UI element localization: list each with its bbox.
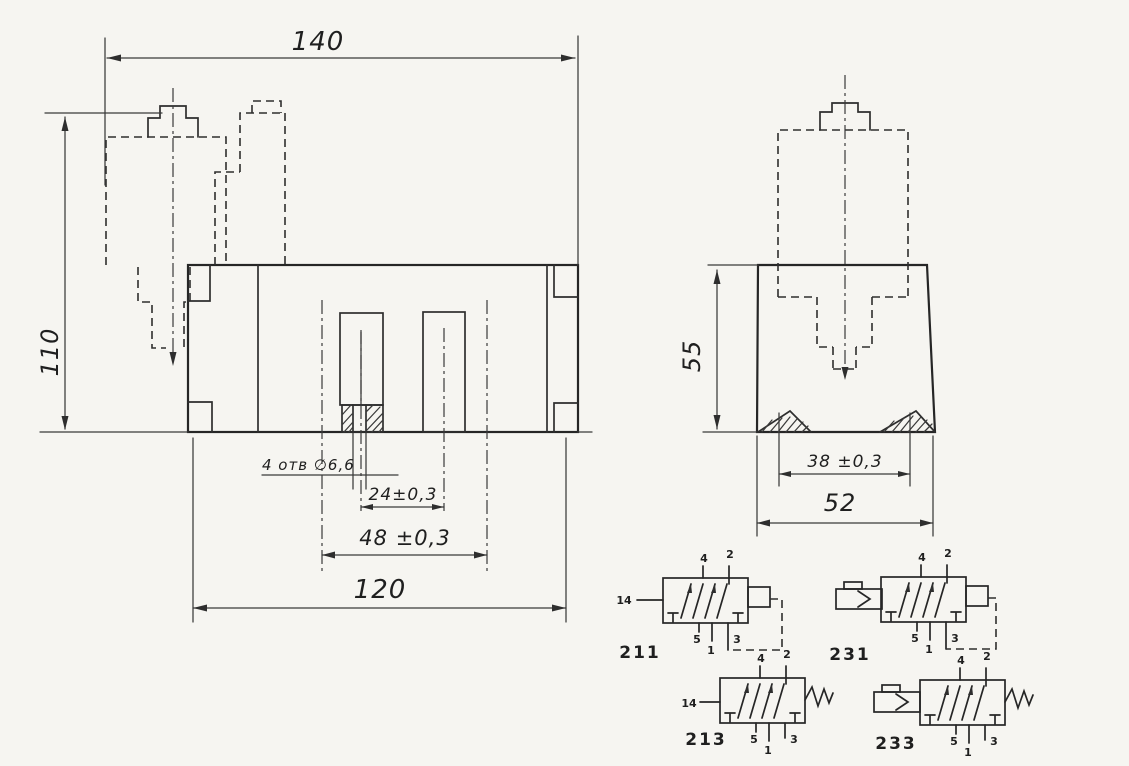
port-14-label: 14 (681, 697, 697, 710)
port-2-label: 2 (726, 548, 734, 561)
port-1-label: 1 (764, 744, 772, 757)
schematic-233: 4 2 5 1 3 233 (874, 650, 1033, 759)
port-1-label: 1 (707, 644, 715, 657)
dimension-24: 24±0,3 (361, 328, 444, 511)
spring-icon (805, 687, 833, 706)
scanned-drawing-page: 140 110 4 отв ∅6,6 24±0,3 (0, 0, 1129, 766)
dim-55-label: 55 (678, 340, 706, 373)
port-4-label: 4 (918, 551, 926, 564)
port-1-label: 1 (925, 643, 933, 656)
port-3-label: 3 (990, 735, 998, 748)
port-2-label: 2 (983, 650, 991, 663)
port-2-label: 2 (783, 648, 791, 661)
port-5-label: 5 (750, 733, 758, 746)
port-1-label: 1 (964, 746, 972, 759)
front-view-body (40, 265, 592, 432)
port-3-label: 3 (733, 633, 741, 646)
front-view-hidden-stem (138, 267, 190, 348)
side-view-hidden-pilot (778, 75, 908, 380)
dim-24-label: 24±0,3 (369, 485, 438, 505)
schematic-213: 14 4 2 5 1 3 213 (681, 648, 833, 757)
hatching (342, 405, 383, 432)
port-2-label: 2 (944, 547, 952, 560)
dim-140-label: 140 (292, 27, 345, 57)
hatching (762, 416, 932, 432)
port-4-label: 4 (757, 652, 765, 665)
schematic-231: 4 2 5 1 3 231 (829, 547, 996, 665)
side-view-grooves (758, 411, 935, 432)
side-view-body (703, 265, 935, 432)
port-3-label: 3 (790, 733, 798, 746)
port-5-label: 5 (693, 633, 701, 646)
port-3-label: 3 (951, 632, 959, 645)
dimension-140: 140 (105, 27, 578, 265)
front-view: 140 110 4 отв ∅6,6 24±0,3 (36, 27, 592, 622)
schematic-213-label: 213 (685, 730, 727, 750)
schematic-211-label: 211 (619, 643, 661, 663)
dim-38-label: 38 ±0,3 (807, 452, 882, 472)
holes-note-label: 4 отв ∅6,6 (262, 456, 355, 474)
front-view-slots (340, 312, 465, 432)
port-14-label: 14 (616, 594, 632, 607)
port-5-label: 5 (950, 735, 958, 748)
dimension-55: 55 (678, 270, 721, 429)
holes-note: 4 отв ∅6,6 (262, 456, 398, 475)
schematic-231-label: 231 (829, 645, 871, 665)
dim-52-label: 52 (824, 489, 857, 517)
schematic-211: 14 4 2 5 1 3 211 (616, 548, 782, 663)
dimension-38: 38 ±0,3 (779, 413, 910, 486)
front-view-hidden-pilot-left (106, 88, 226, 366)
port-4-label: 4 (700, 552, 708, 565)
technical-drawing: 140 110 4 отв ∅6,6 24±0,3 (0, 0, 1129, 766)
dim-110-label: 110 (36, 328, 64, 377)
spring-icon (1005, 689, 1033, 708)
port-4-label: 4 (957, 654, 965, 667)
dim-48-label: 48 ±0,3 (359, 526, 450, 550)
dim-120-label: 120 (354, 575, 407, 605)
side-view: 55 38 ±0,3 52 (678, 75, 935, 536)
dimension-48: 48 ±0,3 (322, 300, 487, 572)
front-view-hole-section (342, 405, 383, 489)
dimension-52: 52 (757, 436, 933, 536)
schematic-233-label: 233 (875, 734, 917, 754)
dimension-110: 110 (36, 113, 162, 430)
port-5-label: 5 (911, 632, 919, 645)
